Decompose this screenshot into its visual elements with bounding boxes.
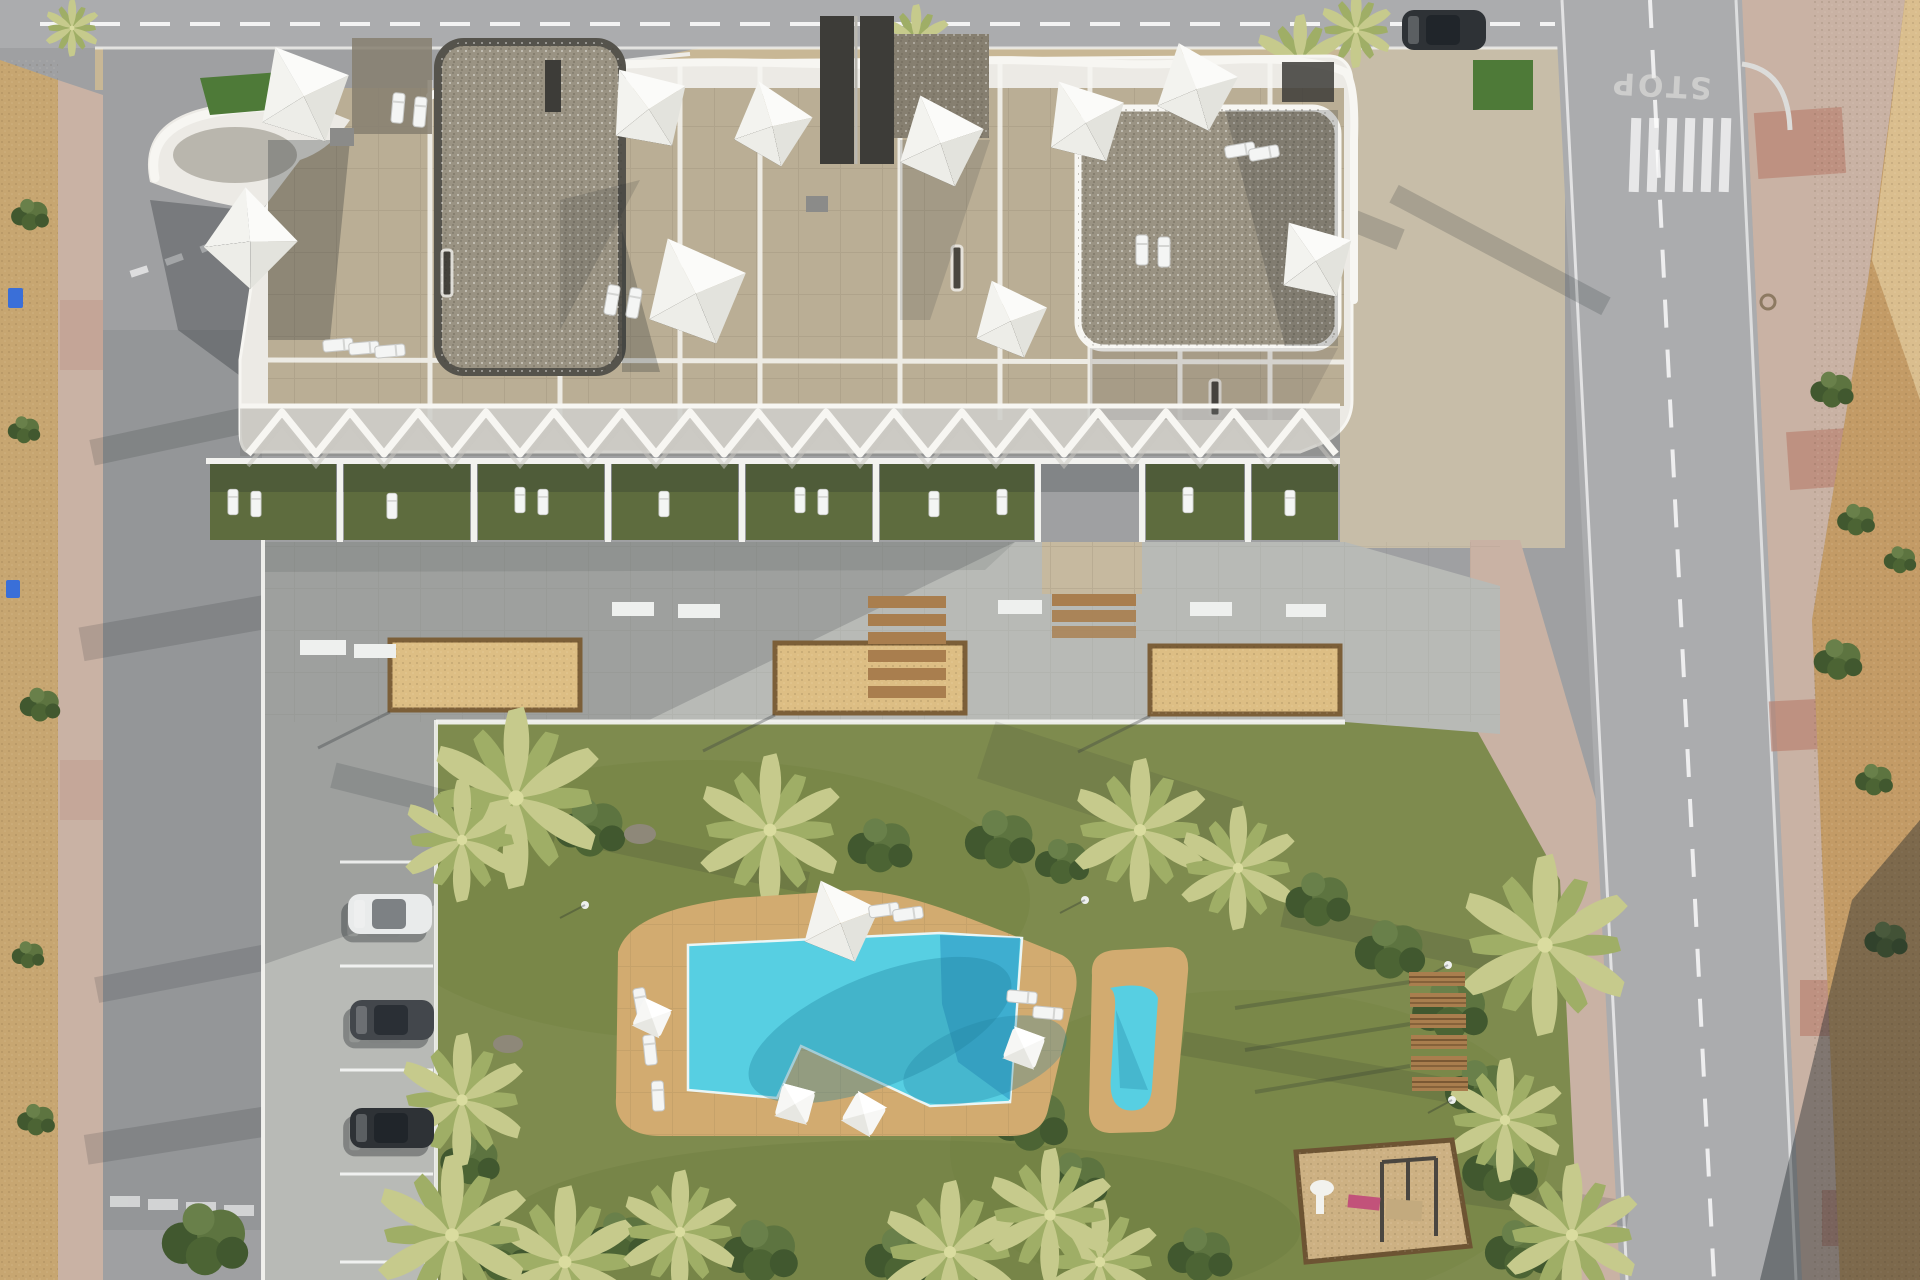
left-sidewalk [58,80,103,1280]
roof-table [330,128,354,146]
apartment-building [148,16,1354,466]
parked-car-black [350,1108,434,1148]
corner-hedge [1473,60,1533,110]
rocks [624,824,656,844]
northeast-walk [1340,48,1565,548]
canopy-shadow [210,462,1338,492]
roof-table [806,196,828,212]
aerial-render-canvas: STOP [0,0,1920,1280]
parked-car-street [1402,10,1486,50]
parked-cars [341,894,434,1156]
blue-bin [8,288,23,308]
blue-bin [6,580,20,598]
stop-road-marking: STOP [1609,65,1712,105]
aerial-scene: STOP [0,0,1920,1280]
kids-pool-water [1110,986,1158,1111]
playground [1296,1140,1470,1262]
private-gardens [206,460,1340,542]
rocks [493,1035,523,1053]
parked-car-dark [350,1000,434,1040]
parked-car-white [348,894,432,934]
